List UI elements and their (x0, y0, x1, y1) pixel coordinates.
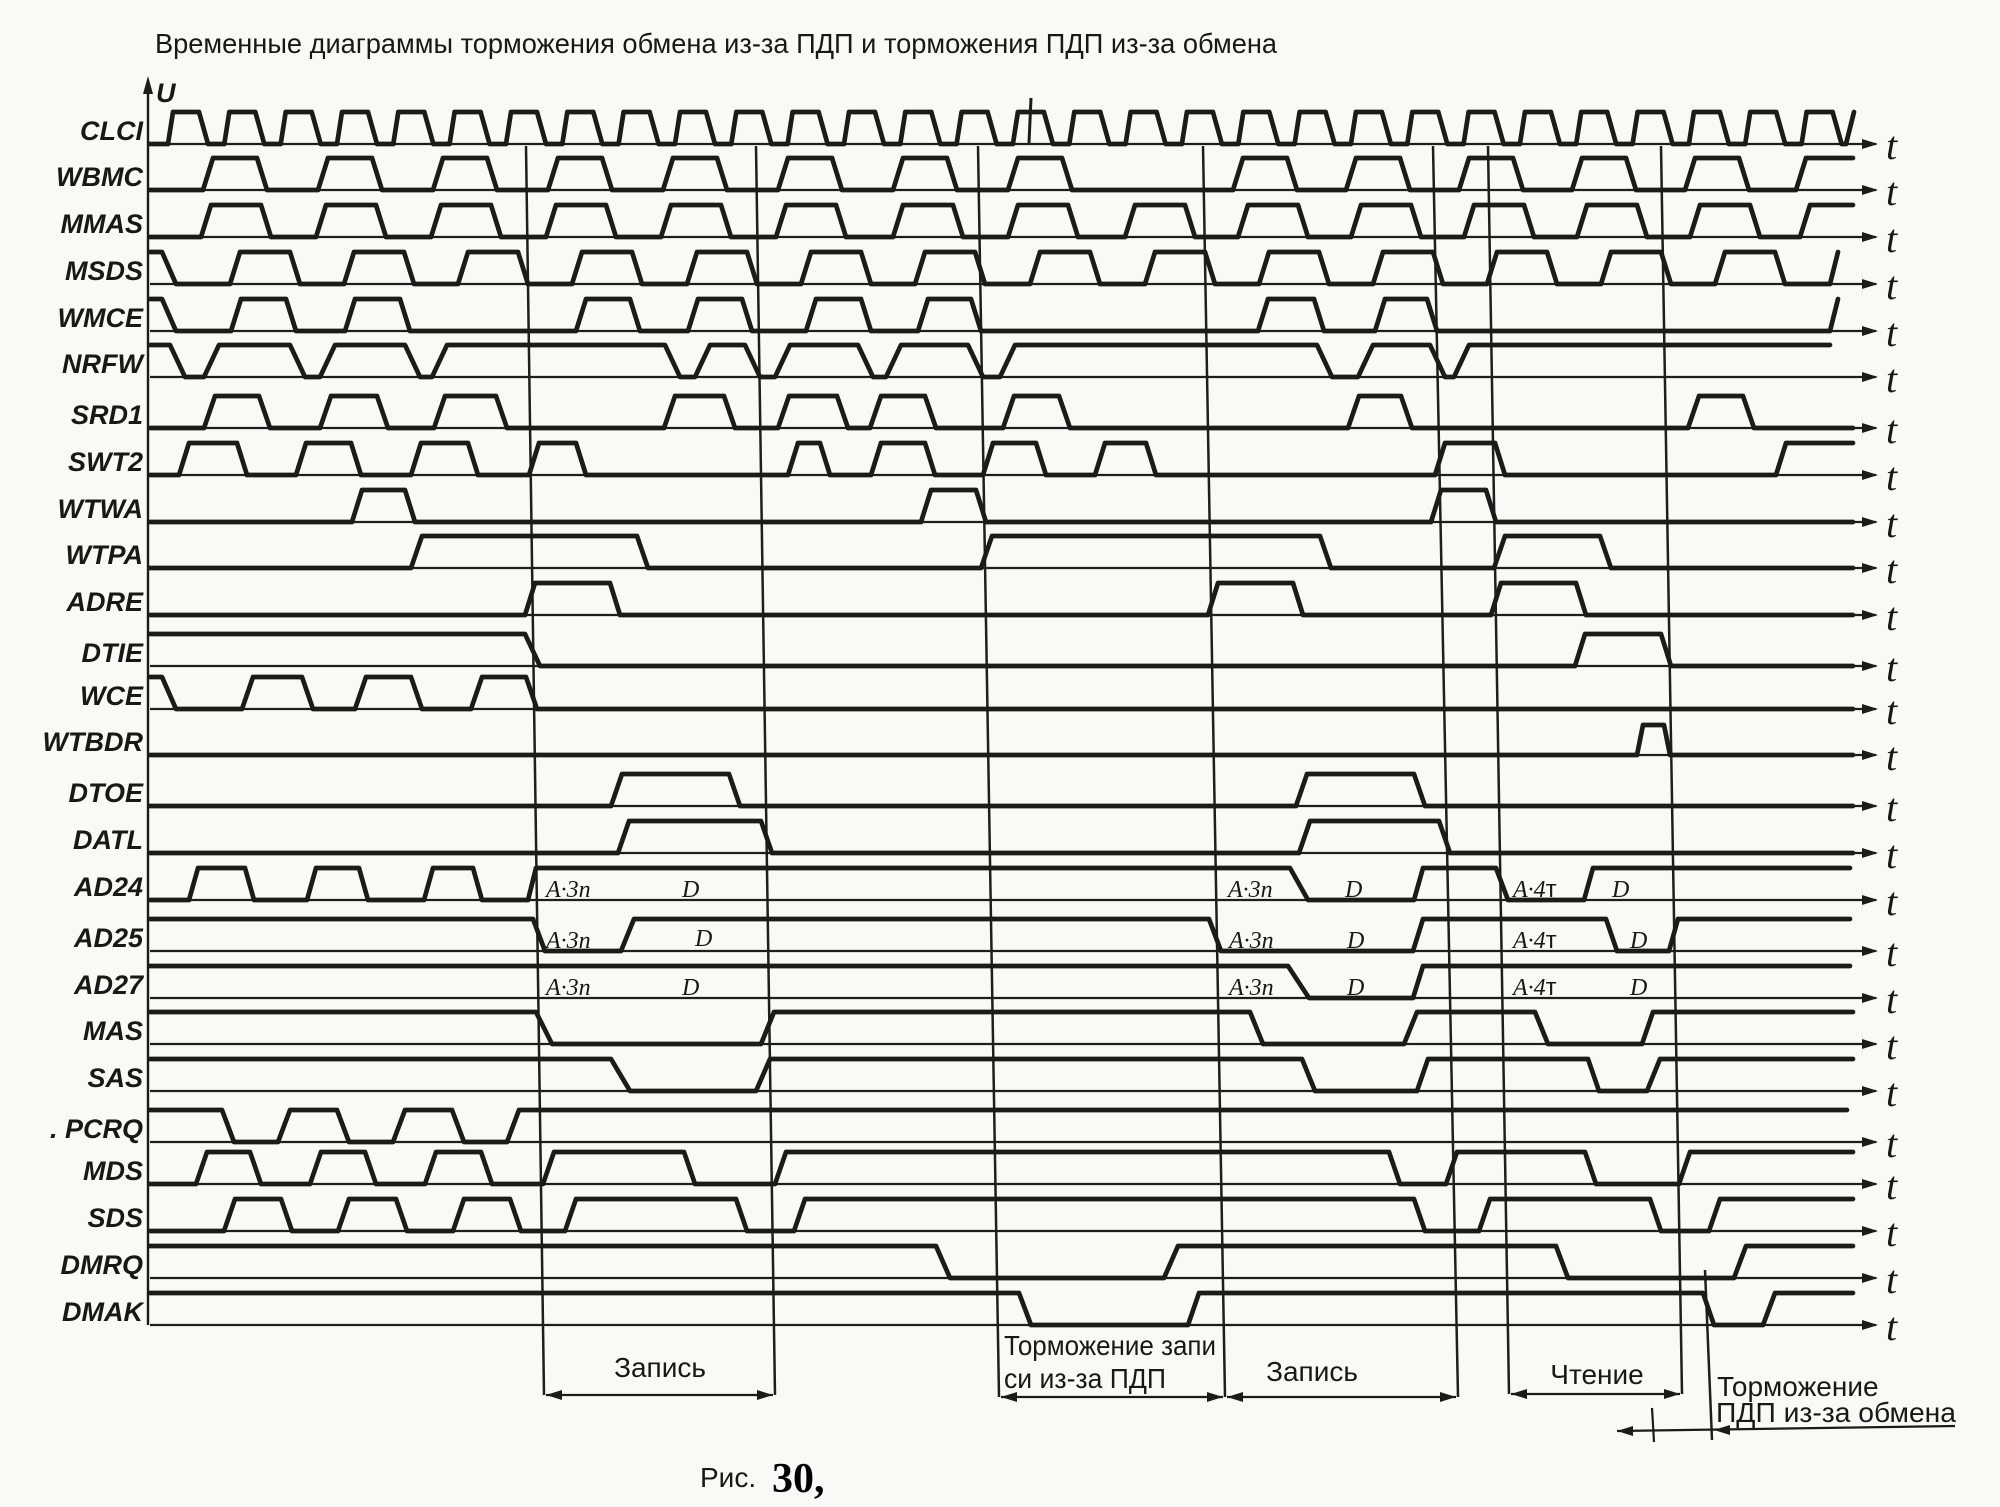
svg-text:t: t (1886, 123, 1898, 168)
svg-text:WBMC: WBMC (56, 162, 143, 192)
svg-text:t: t (1886, 785, 1898, 830)
svg-text:D: D (1344, 877, 1362, 903)
svg-text:MSDS: MSDS (65, 256, 143, 286)
svg-text:t: t (1886, 1121, 1898, 1166)
svg-text:t: t (1886, 501, 1898, 546)
svg-text:CLCI: CLCI (80, 116, 143, 146)
svg-text:DMAK: DMAK (62, 1297, 145, 1327)
svg-text:SAS: SAS (87, 1063, 143, 1093)
svg-text:Запись: Запись (1266, 1356, 1358, 1387)
svg-text:SDS: SDS (87, 1203, 143, 1233)
svg-text:D: D (1346, 928, 1364, 954)
svg-text:30,: 30, (772, 1456, 825, 1502)
svg-text:D: D (1611, 877, 1629, 903)
svg-text:DTOE: DTOE (68, 778, 144, 808)
svg-text:D: D (1346, 975, 1364, 1001)
svg-text:t: t (1886, 594, 1898, 639)
svg-text:DATL: DATL (73, 825, 143, 855)
svg-text:А·3п: А·3п (544, 928, 591, 954)
svg-text:Запись: Запись (614, 1352, 706, 1383)
svg-text:t: t (1886, 734, 1898, 779)
svg-text:D: D (1629, 928, 1647, 954)
svg-text:t: t (1886, 977, 1898, 1022)
svg-text:t: t (1886, 1070, 1898, 1115)
svg-text:t: t (1886, 454, 1898, 499)
svg-text:AD25: AD25 (73, 923, 144, 953)
svg-text:AD27: AD27 (73, 970, 145, 1000)
svg-text:MAS: MAS (83, 1016, 143, 1046)
svg-text:Временные диаграммы торможения: Временные диаграммы торможения обмена из… (155, 28, 1277, 59)
svg-text:D: D (681, 975, 699, 1001)
svg-text:D: D (681, 877, 699, 903)
svg-text:t: t (1886, 1210, 1898, 1255)
svg-text:t: t (1886, 263, 1898, 308)
svg-text:t: t (1886, 407, 1898, 452)
svg-text:D: D (1629, 975, 1647, 1001)
svg-text:А·4т: А·4т (1511, 876, 1557, 903)
svg-text:. PCRQ: . PCRQ (50, 1114, 143, 1144)
svg-text:D: D (694, 926, 712, 952)
svg-text:t: t (1886, 216, 1898, 261)
svg-text:t: t (1886, 310, 1898, 355)
svg-text:ПДП из-за обмена: ПДП из-за обмена (1716, 1397, 1956, 1428)
svg-text:WMCE: WMCE (58, 303, 144, 333)
svg-text:MMAS: MMAS (61, 209, 144, 239)
svg-text:t: t (1886, 169, 1898, 214)
svg-text:А·3п: А·3п (544, 877, 591, 903)
svg-text:WTWA: WTWA (58, 494, 143, 524)
svg-text:А·3п: А·3п (544, 975, 591, 1001)
svg-text:AD24: AD24 (73, 872, 143, 902)
svg-text:WCE: WCE (80, 681, 144, 711)
svg-text:t: t (1886, 879, 1898, 924)
svg-text:NRFW: NRFW (62, 349, 145, 379)
svg-text:t: t (1886, 688, 1898, 733)
svg-text:U: U (156, 78, 177, 108)
svg-text:t: t (1886, 1023, 1898, 1068)
svg-text:DTIE: DTIE (81, 638, 143, 668)
svg-text:А·3п: А·3п (1226, 877, 1273, 903)
svg-text:t: t (1886, 1163, 1898, 1208)
svg-text:А·3п: А·3п (1227, 928, 1274, 954)
svg-text:SRD1: SRD1 (71, 400, 143, 430)
svg-text:WTBDR: WTBDR (43, 727, 144, 757)
svg-text:си из-за ПДП: си из-за ПДП (1004, 1363, 1166, 1394)
svg-text:t: t (1886, 832, 1898, 877)
svg-text:Чтение: Чтение (1550, 1359, 1643, 1390)
svg-text:SWT2: SWT2 (68, 447, 143, 477)
svg-text:WTPA: WTPA (66, 540, 143, 570)
svg-text:DMRQ: DMRQ (61, 1250, 144, 1280)
svg-text:Торможение запи: Торможение запи (1004, 1330, 1216, 1361)
svg-text:t: t (1886, 1257, 1898, 1302)
svg-text:MDS: MDS (83, 1156, 143, 1186)
svg-text:А·3п: А·3п (1227, 975, 1274, 1001)
svg-text:t: t (1886, 930, 1898, 975)
svg-text:t: t (1886, 356, 1898, 401)
svg-text:Рис.: Рис. (700, 1462, 756, 1493)
svg-text:t: t (1886, 1304, 1898, 1349)
svg-text:t: t (1886, 645, 1898, 690)
svg-text:t: t (1886, 547, 1898, 592)
svg-text:А·4т: А·4т (1511, 974, 1557, 1001)
svg-text:ADRE: ADRE (65, 587, 143, 617)
svg-text:А·4т: А·4т (1511, 927, 1557, 954)
